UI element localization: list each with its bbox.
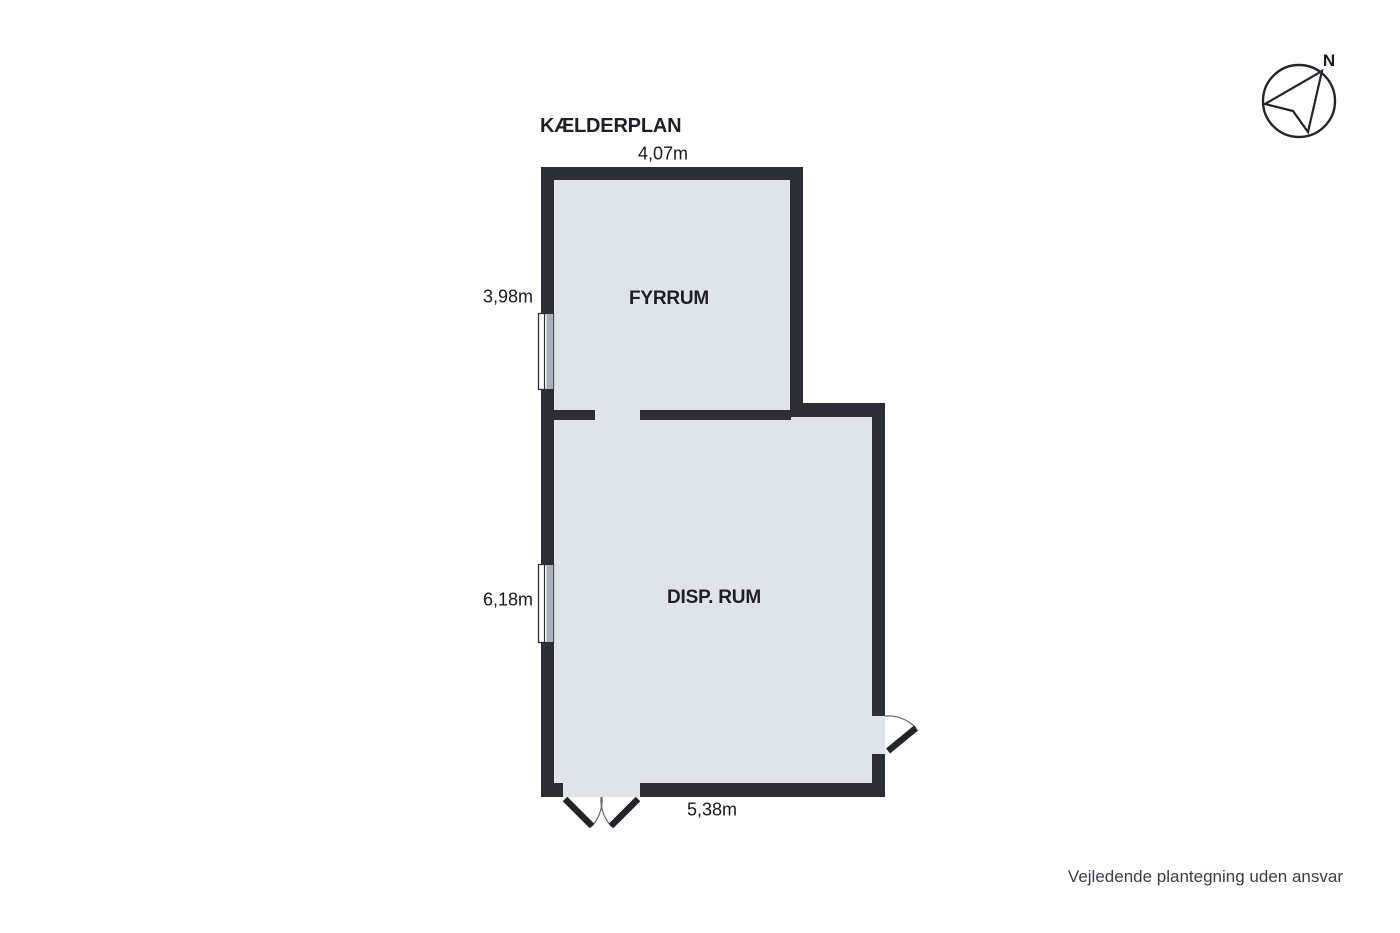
right-door-opening <box>872 716 885 754</box>
dimension-top: 4,07m <box>638 144 688 165</box>
wall-fyrrum-right <box>790 167 803 417</box>
north-arrow-icon <box>1265 71 1322 132</box>
bottom-door-opening <box>563 783 640 797</box>
wall-disp-top-right <box>790 403 885 417</box>
wall-left <box>541 167 554 797</box>
room-label-fyrrum: FYRRUM <box>629 288 709 310</box>
compass-north-label: N <box>1323 51 1335 71</box>
window-disp-rum-icon <box>539 565 554 643</box>
door-right <box>885 716 916 751</box>
double-door-bottom <box>565 797 638 827</box>
floor-plan-page: KÆLDERPLAN 4,07m 3,98m 6,18m 5,38m FYRRU… <box>0 0 1400 933</box>
room-label-disp-rum: DISP. RUM <box>667 587 761 609</box>
window-fyrrum-icon <box>539 314 554 390</box>
wall-fyrrum-top <box>541 167 803 180</box>
dimension-lower-left: 6,18m <box>483 590 533 611</box>
interior-door-opening <box>595 410 640 420</box>
dimension-upper-left: 3,98m <box>483 287 533 308</box>
floor-plan-drawing <box>0 0 1400 933</box>
dimension-bottom: 5,38m <box>687 800 737 821</box>
wall-interior <box>554 410 791 420</box>
disclaimer-text: Vejledende plantegning uden ansvar <box>1068 867 1343 887</box>
plan-title: KÆLDERPLAN <box>540 115 681 138</box>
compass-icon <box>1263 65 1335 137</box>
